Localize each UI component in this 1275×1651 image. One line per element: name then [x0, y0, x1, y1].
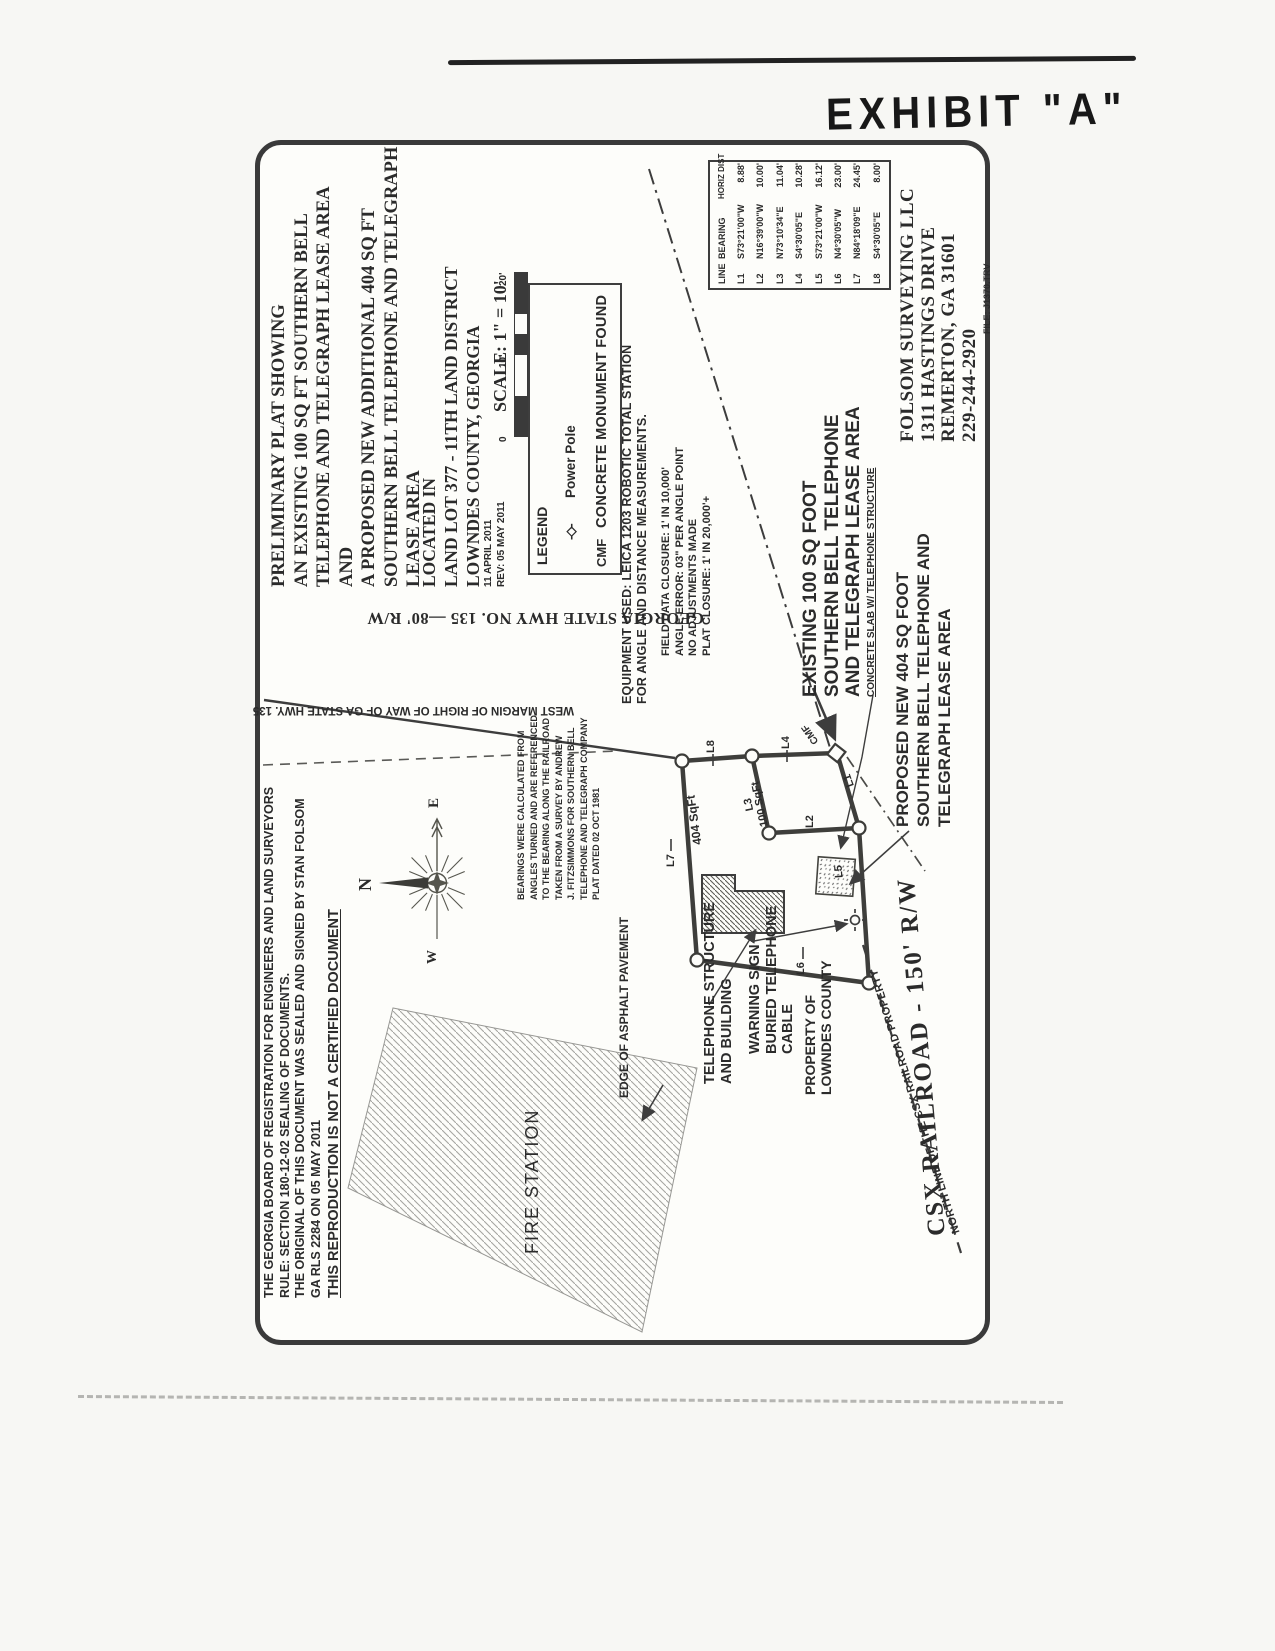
existing-area-label: EXISTING 100 SQ FOOT SOUTHERN BELL TELEP…	[800, 406, 865, 697]
cmf-marker	[827, 744, 845, 762]
equipment-note-line: FOR ANGLE AND DISTANCE MEASUREMENTS.	[635, 345, 650, 704]
line-table-header: LINE BEARING HORIZ DIST	[712, 163, 731, 287]
exhibit-label: EXHIBIT "A"	[826, 84, 1129, 141]
location-line: LOCATED IN	[418, 266, 440, 587]
surveyor-city: REMERTON, GA 31601	[939, 188, 960, 442]
title-line: AND	[336, 147, 359, 587]
line-table-row: L5 S73°21'00"W 16.12'	[809, 163, 828, 287]
bearings-note-line: PLAT DATED 02 OCT 1981	[590, 715, 603, 900]
board-note-line: THE GEORGIA BOARD OF REGISTRATION FOR EN…	[262, 787, 278, 1298]
plat-date: 11 APRIL 2011	[482, 501, 495, 587]
bearings-note-line: TELEPHONE AND TELEGRAPH COMPANY	[578, 715, 591, 900]
telephone-structure-line: AND BUILDING	[719, 902, 736, 1084]
title-line: SOUTHERN BELL TELEPHONE AND TELEGRAPH	[381, 147, 404, 587]
bearings-note-line: TO THE BEARING ALONG THE RAILROAD	[540, 715, 553, 900]
bearings-note-line: BEARINGS WERE CALCULATED FROM	[515, 715, 528, 900]
equipment-note: EQUIPMENT USED: LEICA 1203 ROBOTIC TOTAL…	[620, 345, 650, 704]
fire-station-label: FIRE STATION	[522, 1109, 543, 1254]
surveyor-phone: 229-244-2920	[960, 188, 981, 442]
line-table-row: L3 N73°10'34"E 11.04'	[770, 163, 789, 287]
existing-area-line: EXISTING 100 SQ FOOT	[800, 406, 822, 697]
plat-sheet: PRELIMINARY PLAT SHOWING AN EXISTING 100…	[255, 140, 990, 1345]
board-note-line: THE ORIGINAL OF THIS DOCUMENT WAS SEALED…	[293, 787, 309, 1298]
bearings-note-line: TAKEN FROM A SURVEY BY ANDREW	[553, 715, 566, 900]
title-block: PRELIMINARY PLAT SHOWING AN EXISTING 100…	[268, 147, 426, 587]
bearings-note-line: ANGLES TURNED AND ARE REFERENCED	[528, 715, 541, 900]
scanned-plat-page: { "page": { "exhibit_label": "EXHIBIT \"…	[0, 0, 1275, 1651]
scale-tick-10: 10'	[498, 354, 509, 368]
proposed-area-line: PROPOSED NEW 404 SQ FOOT	[892, 533, 913, 827]
east-arrow	[432, 819, 442, 871]
surveyor-address: 1311 HASTINGS DRIVE	[919, 188, 940, 442]
highway-label: GEORGIA STATE HWY NO. 135 —80' R/W	[367, 608, 704, 628]
title-line: A PROPOSED NEW ADDITIONAL 404 SQ FT	[358, 147, 381, 587]
not-certified-warning: THIS REPRODUCTION IS NOT A CERTIFIED DOC…	[326, 909, 342, 1298]
title-line: PRELIMINARY PLAT SHOWING	[268, 147, 291, 587]
board-note-line: RULE: SECTION 180-12-02 SEALING OF DOCUM…	[278, 787, 294, 1298]
power-pole-legend-icon: -◇-	[563, 524, 579, 540]
bearings-note: BEARINGS WERE CALCULATED FROM ANGLES TUR…	[515, 715, 603, 900]
line-table-row: L7 N84°18'09"E 24.45'	[848, 163, 867, 287]
equipment-note-line: EQUIPMENT USED: LEICA 1203 ROBOTIC TOTAL…	[620, 345, 635, 704]
proposed-area-line: TELEGRAPH LEASE AREA	[934, 533, 955, 827]
compass-east-label: E	[426, 798, 443, 808]
telephone-structure-label: TELEPHONE STRUCTURE AND BUILDING	[702, 902, 735, 1084]
compass-west-label: W	[425, 950, 441, 964]
edge-of-asphalt-label: EDGE OF ASPHALT PAVEMENT	[617, 917, 631, 1098]
segment-label-l3: L3	[742, 797, 756, 812]
line-table-row: L2 N16°39'00"W 10.00'	[751, 163, 770, 287]
board-note: THE GEORGIA BOARD OF REGISTRATION FOR EN…	[262, 787, 324, 1298]
telephone-structure-line: TELEPHONE STRUCTURE	[702, 902, 719, 1084]
scale-tick-0: 0	[498, 436, 509, 442]
concrete-slab-label: CONCRETE SLAB W/ TELEPHONE STRUCTURE	[866, 468, 877, 697]
line-table-row: L8 S4°30'05"E 8.00'	[867, 163, 886, 287]
property-owner-line: PROPERTY OF	[802, 960, 818, 1095]
existing-area-line: SOUTHERN BELL TELEPHONE	[822, 406, 844, 697]
segment-label-l5: L5	[833, 865, 846, 879]
surveyor-block: FOLSOM SURVEYING LLC 1311 HASTINGS DRIVE…	[898, 188, 980, 442]
segment-label-l4: L4	[780, 736, 792, 749]
scale-tick-20: 20'	[498, 272, 509, 286]
line-table: LINE BEARING HORIZ DIST L1 S73°21'00"W 8…	[708, 160, 891, 290]
title-line: AN EXISTING 100 SQ FT SOUTHERN BELL	[291, 147, 314, 587]
location-line: LAND LOT 377 - 11TH LAND DISTRICT	[440, 266, 462, 587]
board-note-line: GA RLS 2284 ON 05 MAY 2011	[309, 787, 325, 1298]
segment-label-l7: L7	[665, 854, 677, 867]
bearings-note-line: J. FITZSIMMONS FOR SOUTHERN BELL	[565, 715, 578, 900]
compass-north-label: N	[355, 878, 376, 891]
warning-sign-line: BURIED TELEPHONE	[764, 906, 781, 1054]
date-block: 11 APRIL 2011 REV: 05 MAY 2011	[482, 501, 508, 587]
existing-area-line: AND TELEGRAPH LEASE AREA	[843, 406, 865, 697]
title-line: TELEPHONE AND TELEGRAPH LEASE AREA	[313, 147, 336, 587]
scan-artifact-dashed-rule	[78, 1395, 1063, 1404]
location-line: LOWNDES COUNTY, GEORGIA	[462, 266, 484, 587]
file-reference: FILE: J1370.TRV	[982, 264, 992, 334]
legend-title: LEGEND	[534, 507, 550, 565]
proposed-area-label: PROPOSED NEW 404 SQ FOOT SOUTHERN BELL T…	[892, 533, 955, 827]
west-margin-label: WEST MARGIN OF RIGHT OF WAY OF GA STATE …	[253, 704, 574, 716]
cmf-legend-label: CONCRETE MONUMENT FOUND	[594, 295, 610, 528]
line-table-row: L6 N4°30'05"W 23.00'	[828, 163, 847, 287]
compass-rose	[379, 819, 465, 939]
warning-sign-line: WARNING SIGN	[747, 906, 764, 1054]
surveyor-name: FOLSOM SURVEYING LLC	[898, 188, 919, 442]
scale-label: SCALE: 1" = 10'	[490, 280, 511, 412]
segment-label-l2: L2	[804, 815, 816, 828]
proposed-area-line: SOUTHERN BELL TELEPHONE AND	[913, 533, 934, 827]
line-table-row: L4 S4°30'05"E 10.28'	[790, 163, 809, 287]
plat-revision-date: REV: 05 MAY 2011	[495, 501, 508, 587]
property-owner-label: PROPERTY OF LOWNDES COUNTY	[802, 960, 834, 1095]
warning-sign-label: WARNING SIGN BURIED TELEPHONE CABLE	[747, 906, 797, 1054]
scan-artifact-rule	[448, 56, 1136, 65]
warning-sign-line: CABLE	[780, 906, 797, 1054]
line-table-row: L1 S73°21'00"W 8.88'	[731, 163, 750, 287]
property-owner-line: LOWNDES COUNTY	[818, 960, 834, 1095]
segment-label-l8: L8	[705, 740, 717, 753]
cmf-legend-abbrev: CMF	[594, 539, 609, 567]
segment-label-l6: L6	[795, 962, 807, 975]
location-block: LOCATED IN LAND LOT 377 - 11TH LAND DIST…	[418, 266, 484, 587]
north-arrow	[379, 878, 428, 889]
scale-bar	[514, 272, 528, 437]
power-pole-legend-label: Power Pole	[563, 425, 578, 498]
